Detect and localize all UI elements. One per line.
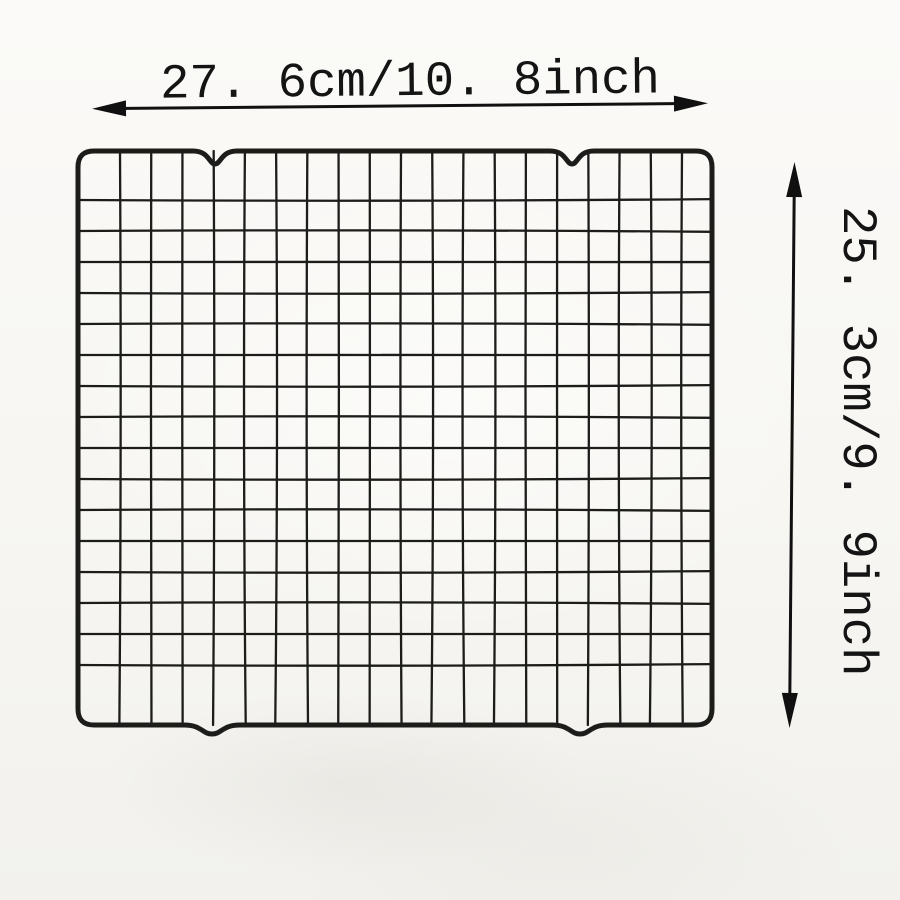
grid-wire-horizontal — [78, 602, 712, 604]
product-image: 27. 6cm/10. 8inch 25. 3cm/9. 9inch — [0, 0, 900, 900]
width-dimension-label: 27. 6cm/10. 8inch — [155, 51, 666, 112]
arrowhead-down-icon — [782, 693, 798, 728]
grid-wire-horizontal — [78, 509, 712, 511]
rack-frame — [78, 151, 712, 734]
grid-wire-horizontal — [78, 664, 712, 666]
arrowhead-left-icon — [92, 100, 126, 116]
grid-wire-vertical — [151, 151, 152, 725]
grid-wire-vertical — [119, 151, 120, 725]
grid-wire-vertical — [338, 151, 339, 725]
grid-wire-vertical — [213, 151, 214, 725]
grid-wire-horizontal — [78, 323, 712, 324]
arrowhead-right-icon — [674, 95, 708, 111]
grid-wire-vertical — [463, 151, 465, 725]
grid-wire-horizontal — [78, 416, 712, 418]
grid-wire-vertical — [526, 151, 527, 725]
product-diagram-svg — [0, 0, 900, 900]
grid-wire-vertical — [650, 151, 652, 725]
grid-wire-vertical — [244, 151, 246, 725]
grid-wire-vertical — [275, 151, 277, 725]
grid-wire-vertical — [494, 151, 495, 725]
grid-wire-horizontal — [78, 230, 712, 231]
grid-wire-vertical — [681, 151, 683, 725]
grid-wire-horizontal — [78, 292, 712, 294]
grid-wire-horizontal — [78, 478, 712, 480]
height-dimension-arrow — [782, 162, 803, 728]
grid-wire-vertical — [307, 151, 308, 725]
grid-wire-horizontal — [78, 571, 712, 573]
grid-wire-horizontal — [78, 199, 712, 201]
rack-grid-wires — [78, 151, 712, 725]
arrowhead-up-icon — [786, 162, 802, 197]
cooling-rack — [78, 151, 712, 734]
grid-wire-vertical — [400, 151, 401, 725]
grid-wire-horizontal — [78, 385, 712, 387]
grid-wire-vertical — [619, 151, 621, 725]
height-dimension-label: 25. 3cm/9. 9inch — [822, 205, 892, 677]
grid-wire-vertical — [431, 151, 433, 725]
grid-wire-vertical — [588, 151, 589, 725]
